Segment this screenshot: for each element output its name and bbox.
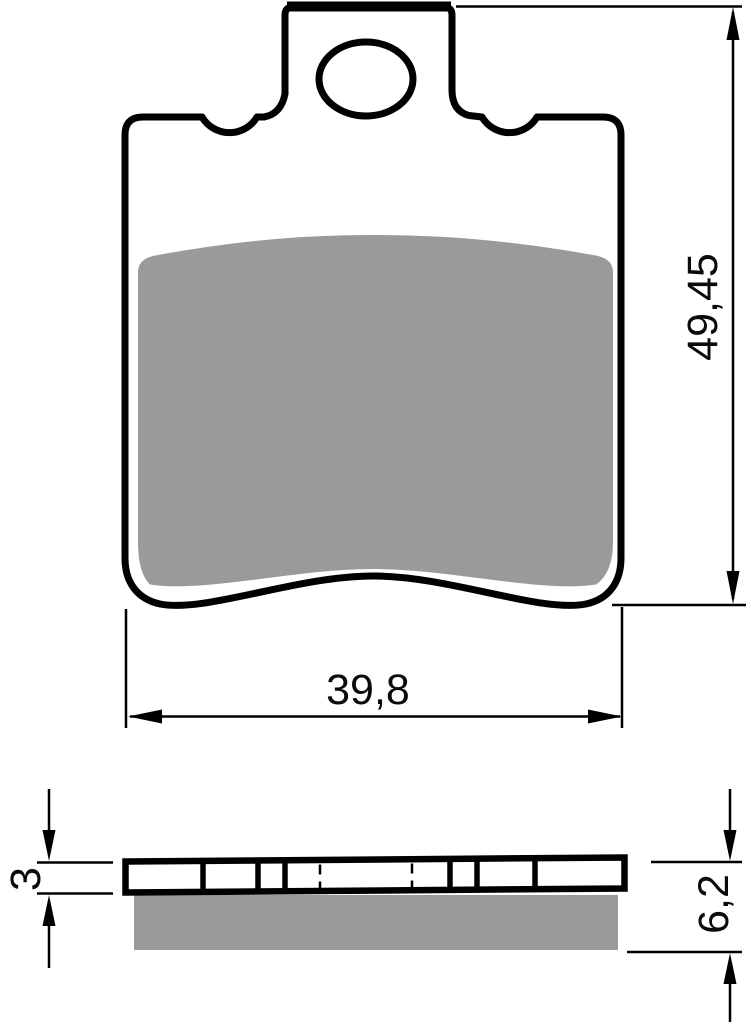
friction-material-side	[134, 895, 618, 950]
mounting-hole	[319, 42, 413, 116]
front-view	[125, 7, 621, 606]
plate-thickness-label: 3	[2, 867, 50, 891]
arrow-up-icon	[724, 953, 737, 984]
total-thickness-dimension: 6,2	[627, 789, 742, 1022]
technical-drawing-page: 49,45 39,8	[0, 0, 751, 1024]
arrow-down-icon	[43, 830, 56, 861]
friction-material-front	[138, 235, 613, 586]
arrow-right-icon	[588, 710, 622, 724]
width-dimension-label: 39,8	[326, 666, 410, 714]
height-dimension-label: 49,45	[679, 253, 727, 361]
arrow-up-icon	[727, 7, 740, 40]
arrow-down-icon	[724, 830, 737, 861]
total-thickness-label: 6,2	[690, 874, 738, 934]
arrow-up-icon	[43, 895, 56, 926]
arrow-left-icon	[128, 710, 162, 724]
arrow-down-icon	[727, 571, 740, 604]
plate-thickness-dimension: 3	[2, 789, 113, 968]
brake-pad-drawing: 49,45 39,8	[0, 0, 751, 1024]
width-dimension: 39,8	[126, 607, 622, 728]
side-view	[126, 858, 625, 951]
